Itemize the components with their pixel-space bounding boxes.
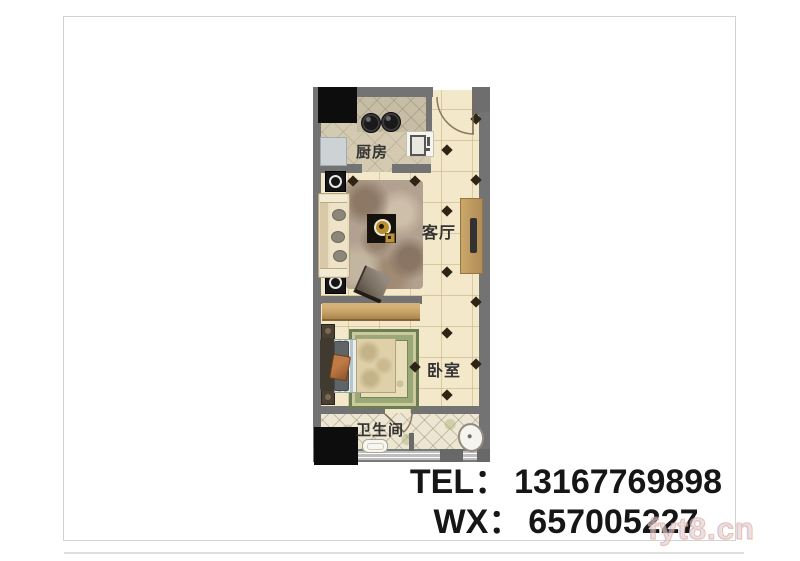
sofa-pillow: [332, 209, 346, 221]
basin-drain: [467, 434, 472, 439]
faucet-icon: [427, 137, 430, 146]
tv: [470, 218, 477, 253]
wall-bottom-right-corner: [477, 449, 490, 462]
wall-kitchen-bottom-right: [392, 164, 431, 173]
tel-line: TEL：13167769898: [398, 462, 734, 502]
wall-kitchen-side: [426, 97, 432, 133]
screenshot-root: 厨房 客厅 卧室 卫生间 TEL：13167769898 WX：65700522…: [0, 0, 800, 561]
wall-bottom-pier: [440, 449, 463, 462]
wall-right: [479, 112, 490, 455]
nightstand-top: [321, 324, 335, 339]
sofa-armrest: [320, 268, 347, 276]
table-plate-center: [379, 224, 384, 229]
toilet: [362, 439, 388, 453]
sofa-backrest: [320, 202, 328, 268]
nightstand-bottom: [321, 390, 335, 405]
sofa-armrest: [320, 195, 347, 203]
duct-shaft-bottom: [314, 427, 358, 465]
window-bottom-right: [463, 451, 478, 460]
sofa-pillow: [333, 250, 347, 262]
photo-bottom-edge: [64, 552, 744, 554]
room-label-kitchen: 厨房: [356, 141, 388, 162]
console-cabinet: [322, 303, 420, 321]
kitchen-sink: [406, 131, 434, 157]
table-tray-dot: [388, 236, 391, 239]
wall-top-right-corner: [472, 87, 490, 115]
stove-burner-icon: [361, 113, 381, 133]
side-table-top: [325, 171, 346, 192]
side-table-ring: [329, 175, 342, 188]
sink-basin: [410, 135, 426, 156]
nightstand-lamp: [325, 394, 331, 400]
stove-burner-icon: [381, 112, 401, 132]
sofa: [318, 193, 350, 278]
site-watermark: fyt8.cn: [648, 511, 755, 547]
toilet-seat: [367, 443, 384, 450]
room-label-living: 客厅: [422, 219, 456, 243]
nightstand-lamp: [325, 328, 331, 334]
duct-shaft-top: [318, 87, 357, 123]
fridge: [320, 137, 347, 166]
wall-bathroom-stub: [409, 433, 414, 451]
wall-bedroom-bath-partition-right: [411, 406, 481, 414]
tel-label: TEL：: [410, 463, 508, 501]
faucet-handle: [426, 148, 430, 151]
tel-number: 13167769898: [514, 463, 722, 501]
sofa-pillow: [331, 231, 345, 243]
room-label-bathroom: 卫生间: [356, 419, 404, 440]
bed-duvet: [356, 338, 396, 393]
wx-label: WX：: [434, 503, 523, 541]
coffee-table: [367, 214, 396, 243]
room-label-bedroom: 卧室: [427, 357, 461, 381]
